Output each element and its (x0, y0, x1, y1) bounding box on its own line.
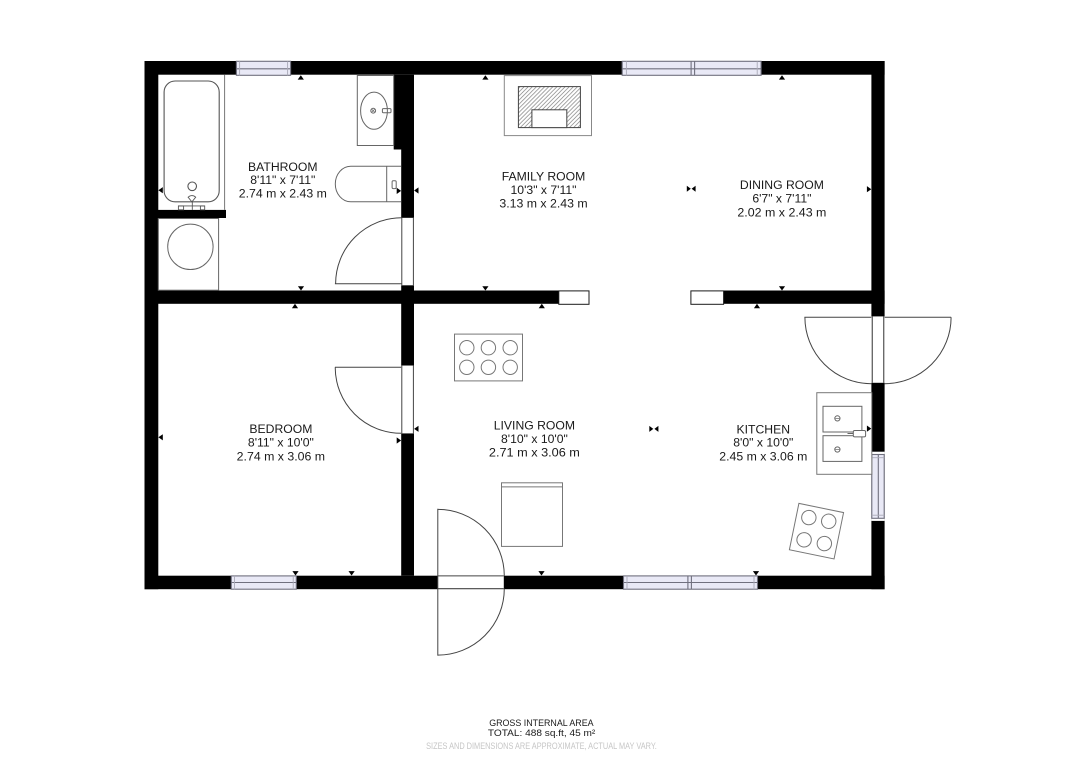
svg-text:KITCHEN: KITCHEN (737, 423, 791, 437)
svg-text:2.45 m x 3.06 m: 2.45 m x 3.06 m (719, 449, 807, 463)
svg-text:LIVING ROOM: LIVING ROOM (494, 418, 575, 432)
svg-text:2.74 m x 2.43 m: 2.74 m x 2.43 m (239, 186, 327, 200)
svg-text:BATHROOM: BATHROOM (248, 160, 318, 174)
svg-text:8'11" x 7'11": 8'11" x 7'11" (250, 173, 315, 187)
svg-text:BEDROOM: BEDROOM (249, 422, 312, 436)
svg-text:6'7" x 7'11": 6'7" x 7'11" (752, 192, 811, 206)
svg-text:10'3" x 7'11": 10'3" x 7'11" (511, 183, 577, 197)
svg-text:8'11" x 10'0": 8'11" x 10'0" (248, 436, 314, 450)
svg-text:FAMILY ROOM: FAMILY ROOM (502, 169, 586, 183)
svg-text:8'10" x 10'0": 8'10" x 10'0" (501, 432, 568, 446)
svg-text:8'0" x 10'0": 8'0" x 10'0" (733, 436, 793, 450)
svg-text:3.13 m x 2.43 m: 3.13 m x 2.43 m (499, 197, 587, 211)
svg-text:DINING ROOM: DINING ROOM (740, 178, 824, 192)
svg-text:TOTAL: 488 sq.ft, 45 m²: TOTAL: 488 sq.ft, 45 m² (488, 728, 595, 739)
svg-text:2.02 m x 2.43 m: 2.02 m x 2.43 m (737, 206, 826, 220)
svg-text:2.71 m x 3.06 m: 2.71 m x 3.06 m (489, 446, 580, 460)
svg-text:2.74 m x 3.06 m: 2.74 m x 3.06 m (237, 449, 325, 463)
svg-text:SIZES AND DIMENSIONS ARE APPRO: SIZES AND DIMENSIONS ARE APPROXIMATE, AC… (426, 741, 657, 751)
